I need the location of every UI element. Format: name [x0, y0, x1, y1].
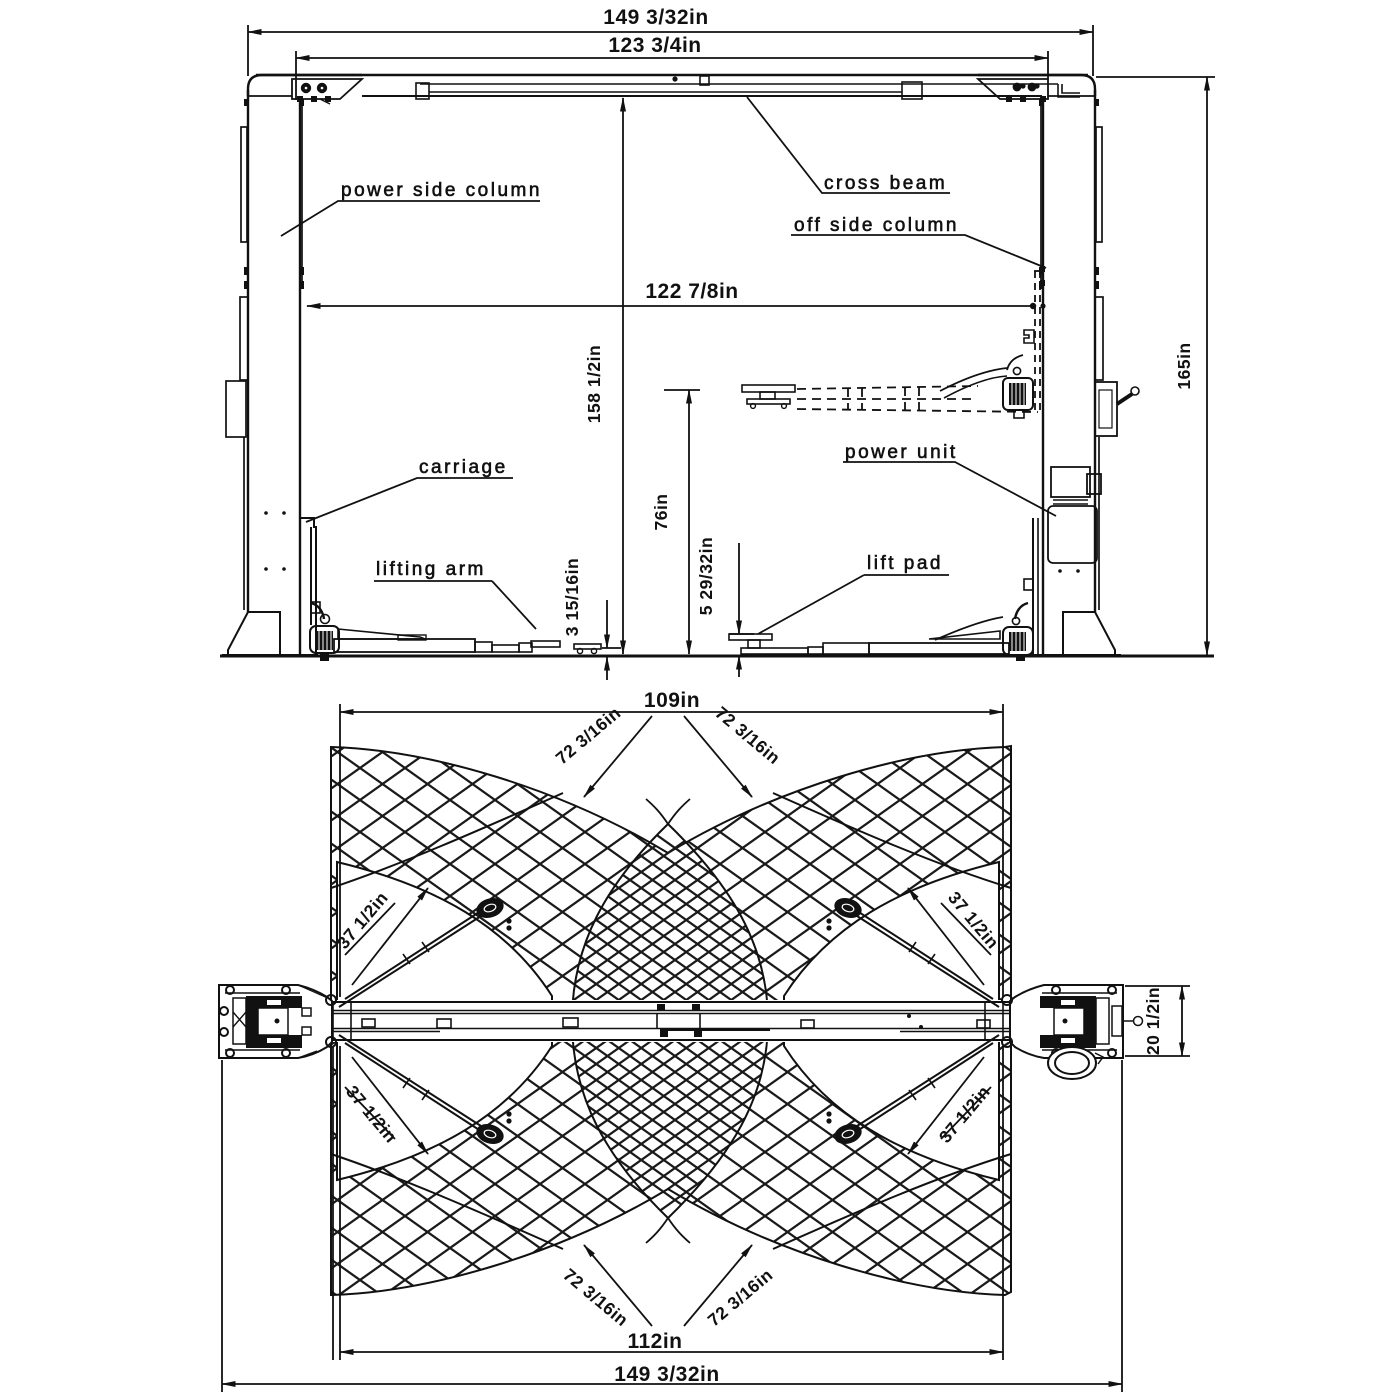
- svg-text:20 1/2in: 20 1/2in: [1143, 987, 1163, 1055]
- svg-text:power side column: power side column: [341, 180, 542, 201]
- svg-text:76in: 76in: [651, 493, 671, 530]
- svg-text:123 3/4in: 123 3/4in: [608, 34, 701, 57]
- svg-text:37 1/2in: 37 1/2in: [944, 888, 1003, 953]
- svg-text:5 29/32in: 5 29/32in: [696, 537, 716, 615]
- svg-text:109in: 109in: [644, 689, 700, 712]
- svg-text:37 1/2in: 37 1/2in: [342, 1082, 401, 1147]
- svg-text:3 15/16in: 3 15/16in: [562, 558, 582, 636]
- svg-text:off side column: off side column: [794, 215, 959, 236]
- svg-text:37 1/2in: 37 1/2in: [333, 888, 392, 953]
- svg-text:112in: 112in: [627, 1330, 682, 1353]
- svg-text:72 3/16in: 72 3/16in: [704, 1265, 777, 1331]
- svg-text:cross beam: cross beam: [824, 173, 947, 194]
- svg-text:lifting arm: lifting arm: [376, 559, 486, 580]
- svg-text:carriage: carriage: [419, 457, 508, 478]
- svg-text:149 3/32in: 149 3/32in: [614, 1363, 719, 1386]
- svg-text:37 1/2in: 37 1/2in: [935, 1082, 994, 1147]
- svg-text:122 7/8in: 122 7/8in: [645, 280, 738, 303]
- svg-text:165in: 165in: [1174, 342, 1194, 389]
- svg-text:158 1/2in: 158 1/2in: [584, 345, 604, 423]
- svg-text:power unit: power unit: [845, 442, 958, 463]
- svg-text:72 3/16in: 72 3/16in: [559, 1265, 632, 1331]
- svg-text:149 3/32in: 149 3/32in: [603, 6, 708, 29]
- svg-text:lift pad: lift pad: [867, 553, 943, 574]
